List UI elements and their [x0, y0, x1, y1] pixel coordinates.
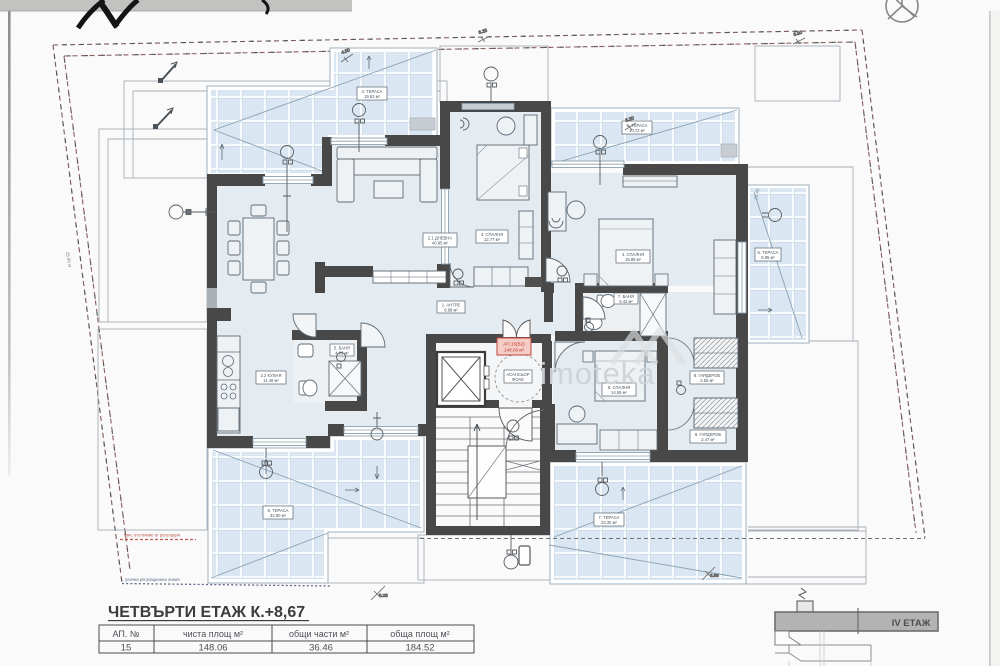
- svg-text:11.48 м²: 11.48 м²: [263, 378, 279, 383]
- svg-text:обща площ м²: обща площ м²: [390, 629, 449, 639]
- svg-text:2.47 м²: 2.47 м²: [701, 437, 715, 442]
- svg-text:32.80 м²: 32.80 м²: [270, 513, 287, 518]
- svg-text:148.06 м²: 148.06 м²: [504, 348, 524, 353]
- svg-text:АП.15(В2): АП.15(В2): [503, 342, 525, 347]
- svg-text:ЧЕТВЪРТИ ЕТАЖ К.+8,67: ЧЕТВЪРТИ ЕТАЖ К.+8,67: [108, 604, 305, 621]
- svg-text:чиста площ м²: чиста площ м²: [183, 629, 243, 639]
- svg-text:мин. отстояние от регулация: мин. отстояние от регулация: [124, 533, 180, 538]
- svg-text:общи части м²: общи части м²: [289, 629, 349, 639]
- svg-text:ФОАЕ: ФОАЕ: [512, 377, 524, 382]
- svg-text:IV ЕТАЖ: IV ЕТАЖ: [892, 618, 931, 629]
- svg-text:8.85 м²: 8.85 м²: [761, 255, 775, 260]
- svg-text:12.77 м²: 12.77 м²: [484, 237, 501, 242]
- svg-text:5.05: 5.05: [379, 593, 388, 598]
- svg-text:АП. №: АП. №: [112, 629, 139, 639]
- svg-text:15.88 м²: 15.88 м²: [625, 257, 642, 262]
- svg-text:5.42 м²: 5.42 м²: [619, 299, 633, 304]
- svg-text:184.52: 184.52: [405, 643, 434, 654]
- svg-text:148.06: 148.06: [198, 643, 227, 654]
- svg-text:2.55 м²: 2.55 м²: [700, 378, 714, 383]
- svg-text:9.98 м²: 9.98 м²: [444, 308, 458, 313]
- svg-text:15: 15: [121, 643, 132, 654]
- svg-text:19.53 м²: 19.53 м²: [364, 94, 381, 99]
- svg-text:40.95 м²: 40.95 м²: [432, 241, 449, 246]
- svg-text:imoteka: imoteka: [540, 356, 656, 391]
- svg-text:3.85: 3.85: [710, 573, 719, 578]
- svg-text:23.30 м²: 23.30 м²: [601, 520, 618, 525]
- svg-text:улична регулационна линия: улична регулационна линия: [125, 577, 180, 582]
- svg-text:10.72 м²: 10.72 м²: [629, 128, 646, 133]
- svg-text:36.46: 36.46: [309, 643, 333, 654]
